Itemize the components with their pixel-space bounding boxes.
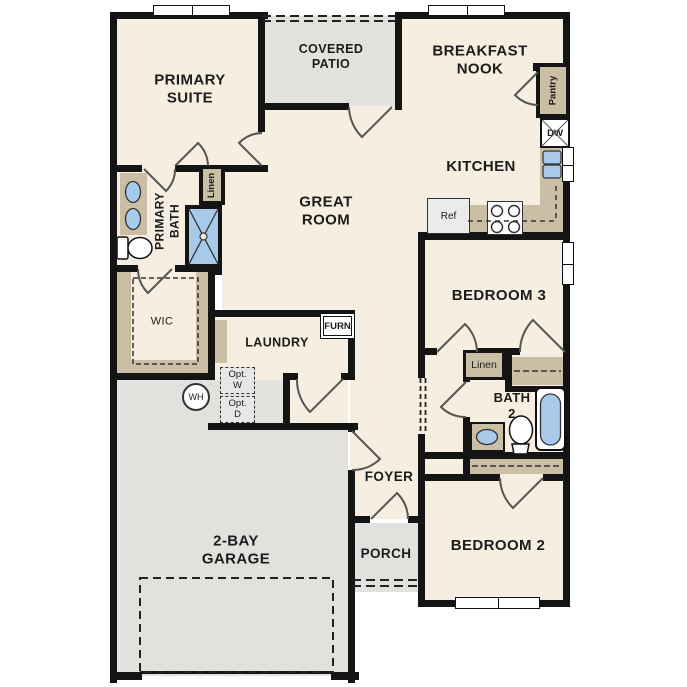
bath2-vanity: [470, 422, 505, 452]
water-heater-label: WH: [189, 392, 204, 402]
wall: [110, 165, 142, 172]
great-room-label: GREAT ROOM: [291, 194, 361, 231]
wall: [425, 348, 437, 355]
wall: [110, 265, 138, 272]
wall: [348, 423, 355, 432]
wall: [348, 516, 370, 523]
shower: [185, 205, 222, 268]
bedroom3-label: BEDROOM 3: [452, 287, 546, 305]
wall: [543, 474, 570, 481]
wall: [463, 417, 470, 474]
bedroom2-closet-shelf: [470, 458, 563, 474]
floor-plan: Linen Pantry DW Ref FURN Opt. W Opt. D W…: [0, 0, 687, 687]
covered-patio-label: COVERED PATIO: [286, 42, 376, 73]
wic-label: WIC: [151, 315, 174, 328]
linen-closet-hall: Linen: [463, 350, 505, 380]
window: [153, 5, 230, 16]
wall: [290, 373, 298, 380]
wall: [425, 452, 570, 459]
water-heater: WH: [182, 383, 210, 411]
garage-entry-vestibule-floor: [290, 380, 348, 423]
wall: [208, 265, 215, 380]
furnace: FURN: [320, 313, 355, 339]
stove: [487, 201, 523, 235]
window: [455, 597, 540, 609]
refrigerator: Ref: [427, 198, 470, 234]
wall: [348, 470, 355, 683]
wall: [258, 110, 265, 132]
bath2-label: BATH 2: [488, 390, 536, 422]
garage-label: 2-BAY GARAGE: [186, 533, 286, 570]
pantry-label: Pantry: [548, 76, 559, 106]
wall: [110, 672, 142, 680]
linen-hall-label: Linen: [471, 359, 497, 371]
optional-dryer-label: Opt. D: [226, 399, 250, 420]
cased-opening: [418, 378, 425, 434]
wic-shelf-bottom: [117, 360, 208, 374]
laundry-label: LAUNDRY: [245, 335, 308, 350]
wall: [110, 373, 215, 380]
window: [562, 242, 574, 285]
optional-dryer: Opt. D: [220, 396, 255, 423]
wall: [283, 423, 358, 430]
bedroom3-closet-shelf: [512, 357, 563, 385]
wall: [258, 12, 265, 110]
optional-washer-label: Opt. W: [226, 370, 250, 391]
linen-closet-primary: Linen: [199, 165, 225, 205]
dishwasher: DW: [540, 118, 570, 148]
wall: [110, 12, 117, 683]
primary-suite-label: PRIMARY SUITE: [130, 72, 250, 109]
wic-shelf-left: [117, 272, 131, 373]
wall: [283, 373, 290, 430]
primary-bath-label: PRIMARY BATH: [152, 181, 181, 261]
optional-washer: Opt. W: [220, 367, 255, 394]
breakfast-nook-label: BREAKFAST NOOK: [415, 43, 545, 80]
wall: [395, 19, 402, 110]
window: [562, 147, 574, 182]
foyer-corridor-floor: [350, 307, 422, 519]
wic-shelf-right: [196, 272, 208, 373]
furnace-label: FURN: [324, 321, 350, 332]
garage-door-sill: [140, 671, 333, 674]
wall: [208, 423, 290, 430]
primary-vanity-counter: [120, 173, 147, 235]
kitchen-label: KITCHEN: [446, 158, 515, 176]
dishwasher-label: DW: [546, 128, 564, 139]
porch-label: PORCH: [361, 546, 412, 562]
wall: [565, 348, 570, 355]
laundry-counter: [215, 320, 227, 363]
wall: [408, 516, 425, 523]
wall: [425, 474, 500, 481]
refrigerator-label: Ref: [441, 211, 457, 222]
linen-primary-label: Linen: [207, 172, 218, 197]
bedroom2-label: BEDROOM 2: [451, 537, 545, 555]
window: [428, 5, 505, 16]
foyer-label: FOYER: [365, 469, 414, 485]
wall: [258, 103, 349, 110]
